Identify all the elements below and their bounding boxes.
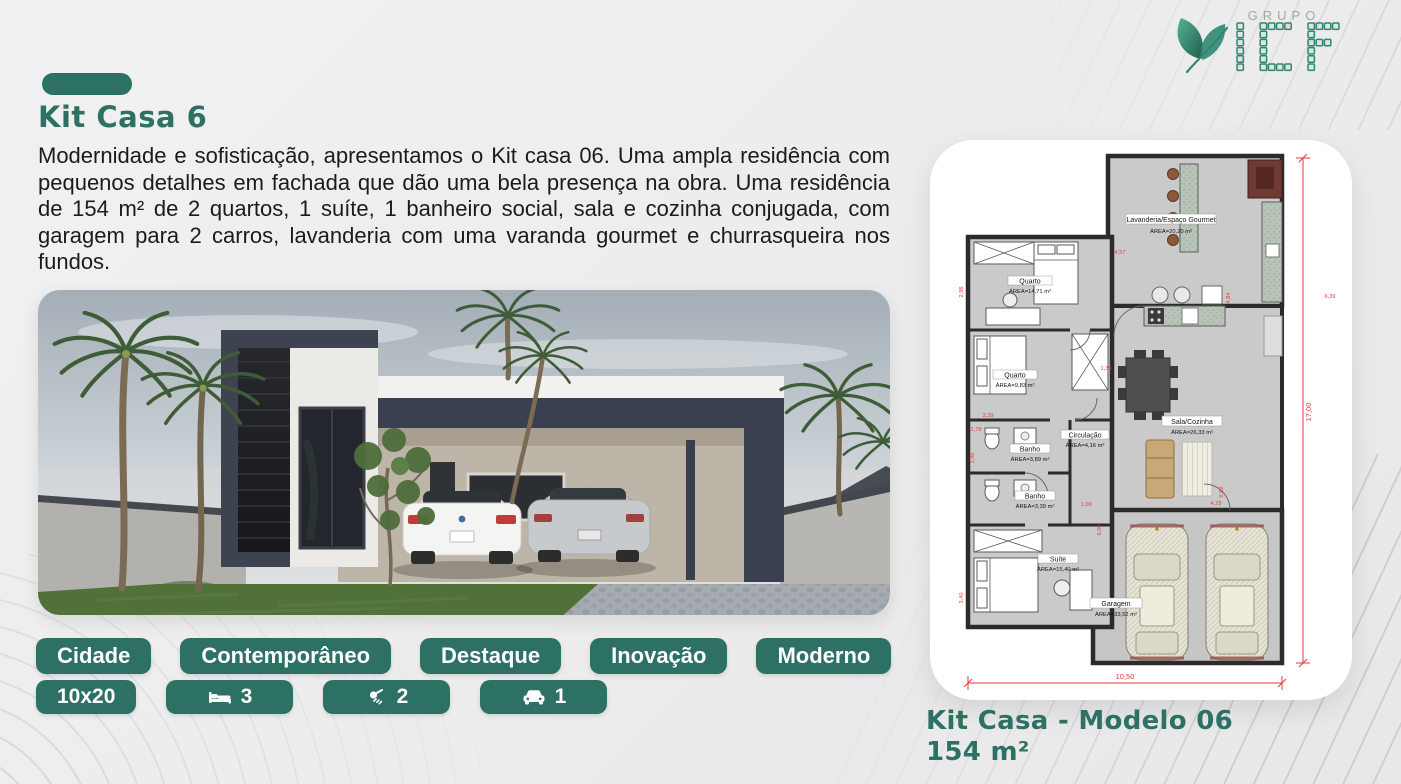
svg-text:1,40: 1,40 — [970, 453, 976, 464]
svg-text:4,57: 4,57 — [1115, 250, 1126, 256]
tag-contemporaneo: Contemporâneo — [180, 638, 391, 674]
white-car — [403, 491, 521, 564]
svg-text:3,39: 3,39 — [983, 413, 994, 419]
svg-text:ÁREA=3,39 m²: ÁREA=3,39 m² — [1016, 503, 1055, 510]
svg-text:ÁREA=20,20 m²: ÁREA=20,20 m² — [1150, 228, 1192, 235]
model-name: Kit Casa - Modelo 06 — [926, 706, 1233, 737]
bedrooms-count: 3 — [241, 685, 253, 709]
svg-text:10,50: 10,50 — [1116, 672, 1135, 681]
plan-caption: Kit Casa - Modelo 06 154 m² — [926, 706, 1233, 768]
showers-badge: 2 — [323, 680, 450, 714]
svg-text:1,39: 1,39 — [1101, 366, 1112, 372]
garage-count: 1 — [555, 685, 567, 709]
tag-moderno: Moderno — [756, 638, 891, 674]
svg-text:ÁREA=15,40 m²: ÁREA=15,40 m² — [1037, 566, 1079, 573]
svg-text:Suíte: Suíte — [1050, 557, 1066, 564]
floorplan-drawing: Lavanderia/Espaço Gourmet ÁREA=20,20 m² … — [930, 140, 1352, 700]
bedrooms-badge: 3 — [166, 680, 293, 714]
tag-inovacao: Inovação — [590, 638, 727, 674]
tag-destaque: Destaque — [420, 638, 561, 674]
bed-icon — [208, 689, 232, 706]
logo-grupo-text: GRUPO — [1239, 8, 1329, 23]
accent-pill — [42, 73, 132, 95]
svg-text:2,78: 2,78 — [971, 427, 982, 433]
model-area: 154 m² — [926, 737, 1233, 768]
svg-text:ÁREA=3,89 m²: ÁREA=3,89 m² — [1011, 456, 1050, 463]
driveway — [558, 584, 890, 615]
svg-text:0,82: 0,82 — [1219, 487, 1225, 498]
svg-text:6,39: 6,39 — [1325, 294, 1336, 300]
page-title: Kit Casa 6 — [38, 100, 207, 134]
svg-text:17,00: 17,00 — [1304, 403, 1313, 422]
svg-text:Banho: Banho — [1020, 447, 1040, 454]
svg-text:ÁREA=33,52 m²: ÁREA=33,52 m² — [1095, 611, 1137, 618]
shower-icon — [366, 688, 388, 706]
tag-row: Cidade Contemporâneo Destaque Inovação M… — [36, 638, 891, 674]
showers-count: 2 — [397, 685, 409, 709]
svg-text:ÁREA=14,71 m²: ÁREA=14,71 m² — [1009, 288, 1051, 295]
svg-text:Sala/Cozinha: Sala/Cozinha — [1171, 419, 1213, 426]
svg-text:Quarto: Quarto — [1019, 279, 1041, 286]
svg-text:Circulação: Circulação — [1068, 433, 1101, 440]
tag-cidade: Cidade — [36, 638, 151, 674]
house-render-image — [38, 290, 890, 615]
details-row: 10x20 3 2 — [36, 680, 607, 714]
car-icon — [522, 689, 546, 706]
kitchen-counter — [1144, 286, 1225, 326]
leaf-icon — [1178, 18, 1227, 72]
description-text: Modernidade e sofisticação, apresentamos… — [38, 143, 890, 276]
svg-text:4,84: 4,84 — [1226, 293, 1232, 304]
floorplan-card: Lavanderia/Espaço Gourmet ÁREA=20,20 m² … — [930, 140, 1352, 700]
garage-badge: 1 — [480, 680, 607, 714]
svg-text:Banho: Banho — [1025, 494, 1045, 501]
lot-size-badge: 10x20 — [36, 680, 136, 714]
grupo-icf-logo: GRUPO ICF — [1175, 6, 1365, 78]
svg-text:4,29: 4,29 — [1211, 501, 1222, 507]
svg-text:Lavanderia/Espaço Gourmet: Lavanderia/Espaço Gourmet — [1126, 217, 1215, 224]
svg-text:Garagem: Garagem — [1101, 601, 1130, 608]
svg-text:6,00: 6,00 — [1097, 525, 1103, 536]
svg-text:ÁREA=26,33 m²: ÁREA=26,33 m² — [1171, 429, 1213, 436]
svg-text:2,96: 2,96 — [959, 287, 965, 298]
svg-text:ÁREA=9,83 m²: ÁREA=9,83 m² — [996, 382, 1035, 389]
svg-text:1,00: 1,00 — [1081, 502, 1092, 508]
svg-text:ÁREA=4,16 m²: ÁREA=4,16 m² — [1066, 442, 1105, 449]
flyer-page: GRUPO ICF Kit Casa 6 Modernidade e sofis… — [0, 0, 1401, 784]
svg-text:Quarto: Quarto — [1004, 373, 1026, 380]
svg-text:3,40: 3,40 — [959, 593, 965, 604]
